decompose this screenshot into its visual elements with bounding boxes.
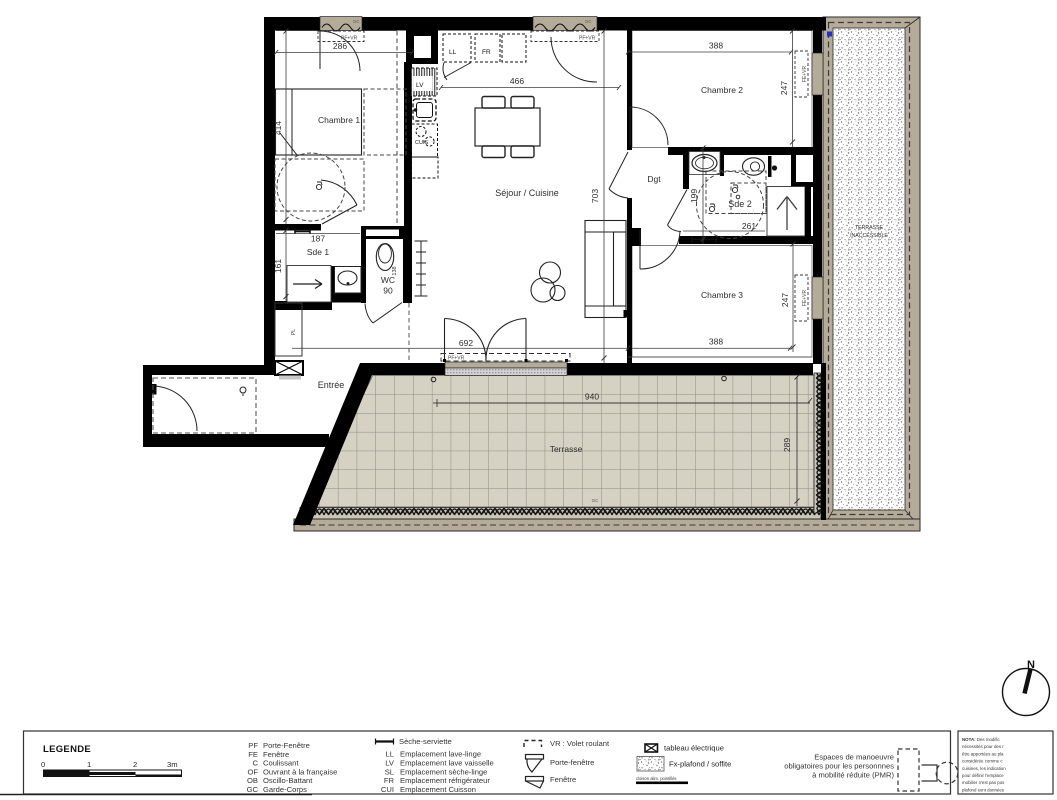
svg-text:C: C — [253, 759, 259, 768]
svg-text:LL: LL — [449, 49, 457, 56]
svg-text:obligatoires pour les personnn: obligatoires pour les personnnes — [784, 761, 894, 770]
svg-text:703: 703 — [590, 189, 600, 203]
svg-text:VR : Volet roulant: VR : Volet roulant — [550, 739, 610, 748]
svg-text:N: N — [1027, 659, 1035, 671]
svg-text:PF+VR: PF+VR — [448, 356, 465, 362]
svg-text:LL: LL — [386, 749, 394, 758]
svg-text:OF: OF — [247, 767, 258, 776]
svg-text:LV: LV — [416, 82, 424, 89]
svg-text:cloison alim. pointillés: cloison alim. pointillés — [636, 776, 677, 781]
svg-text:GC: GC — [585, 19, 591, 24]
svg-text:FE+VR: FE+VR — [802, 289, 808, 306]
svg-text:LV: LV — [385, 759, 395, 768]
svg-text:Chambre 3: Chambre 3 — [701, 290, 743, 300]
svg-text:PF+VR: PF+VR — [579, 36, 596, 42]
svg-text:Emplacement sèche-linge: Emplacement sèche-linge — [400, 767, 487, 776]
svg-text:cuisines, les indication: cuisines, les indication — [962, 766, 1006, 771]
svg-text:être apportées au pla: être apportées au pla — [962, 751, 1004, 756]
svg-text:940: 940 — [585, 392, 599, 402]
svg-text:Espaces de manoeuvre: Espaces de manoeuvre — [814, 753, 894, 762]
svg-text:161: 161 — [273, 259, 283, 273]
svg-text:Sde 1: Sde 1 — [307, 247, 329, 257]
svg-text:Chambre 2: Chambre 2 — [701, 85, 743, 95]
svg-text:Fenêtre: Fenêtre — [263, 750, 289, 759]
svg-text:Emplacement lave vaisselle: Emplacement lave vaisselle — [400, 759, 494, 768]
svg-text:Oscillo-Battant: Oscillo-Battant — [263, 776, 313, 785]
svg-text:Chambre 1: Chambre 1 — [318, 115, 360, 125]
svg-text:plafond sont données: plafond sont données — [962, 787, 1005, 792]
svg-text:FR: FR — [482, 49, 491, 56]
svg-text:Dgt: Dgt — [647, 174, 661, 184]
svg-text:à mobilité réduite (PMR): à mobilité réduite (PMR) — [812, 770, 894, 779]
svg-text:GC: GC — [247, 785, 259, 794]
svg-text:286: 286 — [333, 41, 347, 51]
svg-text:NOTA: Des modific: NOTA: Des modific — [962, 737, 1001, 742]
svg-text:OB: OB — [247, 776, 258, 785]
svg-text:261: 261 — [742, 221, 756, 231]
svg-text:90: 90 — [383, 286, 393, 296]
svg-text:Terrasse: Terrasse — [550, 444, 583, 454]
svg-text:Fenêtre: Fenêtre — [550, 775, 576, 784]
svg-text:GC: GC — [592, 498, 600, 503]
svg-text:Emplacement Cuisson: Emplacement Cuisson — [400, 785, 476, 794]
svg-text:GC: GC — [814, 420, 819, 428]
svg-text:Porte-fenêtre: Porte-fenêtre — [550, 758, 594, 767]
svg-text:CUI: CUI — [381, 785, 394, 794]
svg-text:FR: FR — [384, 776, 395, 785]
svg-text:FE: FE — [248, 750, 258, 759]
svg-text:2: 2 — [133, 760, 137, 769]
svg-text:CUIS: CUIS — [415, 140, 428, 146]
svg-text:PL: PL — [291, 329, 297, 335]
svg-text:GC: GC — [353, 19, 359, 24]
svg-text:PF: PF — [248, 741, 258, 750]
svg-text:Garde-Corps: Garde-Corps — [263, 785, 307, 794]
svg-text:692: 692 — [459, 338, 473, 348]
svg-text:nécessités pour des r: nécessités pour des r — [962, 744, 1004, 749]
svg-text:289: 289 — [782, 438, 792, 452]
svg-text:199: 199 — [689, 189, 699, 203]
svg-text:considérée comme c: considérée comme c — [962, 759, 1003, 764]
svg-text:247: 247 — [779, 81, 789, 95]
svg-text:388: 388 — [709, 337, 723, 347]
svg-text:INACCESSIBLE: INACCESSIBLE — [850, 233, 888, 239]
svg-text:466: 466 — [510, 76, 524, 86]
svg-text:388: 388 — [709, 41, 723, 51]
svg-text:Séjour / Cuisine: Séjour / Cuisine — [495, 188, 559, 198]
svg-text:mobilier n'est pas pos: mobilier n'est pas pos — [962, 780, 1005, 785]
svg-text:Fx-plafond / soffite: Fx-plafond / soffite — [669, 760, 731, 769]
svg-text:0: 0 — [41, 760, 45, 769]
svg-text:LEGENDE: LEGENDE — [43, 744, 91, 755]
svg-text:1: 1 — [87, 760, 91, 769]
svg-text:247: 247 — [780, 293, 790, 307]
svg-text:Coulissant: Coulissant — [263, 759, 299, 768]
svg-text:138: 138 — [392, 266, 398, 275]
svg-text:187: 187 — [311, 234, 325, 244]
svg-text:Emplacement réfrigérateur: Emplacement réfrigérateur — [400, 776, 490, 785]
svg-text:Sde 2: Sde 2 — [728, 199, 752, 209]
svg-text:Emplacement lave-linge: Emplacement lave-linge — [400, 749, 481, 758]
svg-text:pour définir l'emplace: pour définir l'emplace — [962, 773, 1004, 778]
svg-text:SL: SL — [385, 767, 394, 776]
svg-text:Porte-Fenêtre: Porte-Fenêtre — [263, 741, 310, 750]
svg-text:Entrée: Entrée — [318, 380, 345, 390]
svg-text:Sèche-serviette: Sèche-serviette — [399, 737, 452, 746]
svg-text:Ouvrant à la française: Ouvrant à la française — [263, 767, 337, 776]
svg-text:tableau électrique: tableau électrique — [664, 744, 724, 753]
svg-text:3m: 3m — [167, 760, 178, 769]
svg-text:TERRASSE: TERRASSE — [855, 225, 884, 231]
svg-text:414: 414 — [273, 121, 283, 135]
svg-text:FE+VR: FE+VR — [802, 65, 808, 82]
